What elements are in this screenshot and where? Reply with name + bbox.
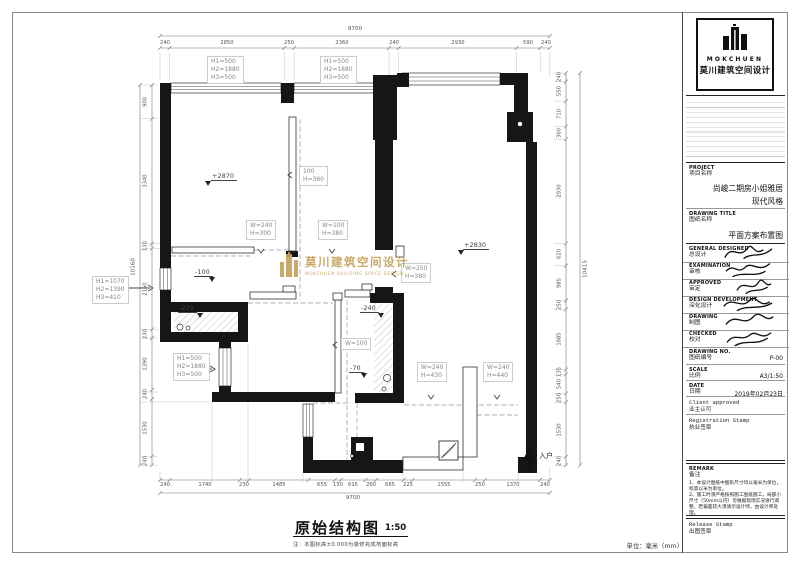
label-cn: 图纸编号	[689, 355, 730, 362]
dim-value: 1370	[506, 483, 519, 489]
dim-value: 2360	[335, 41, 348, 47]
logo-text-en: MOKCHUEN	[698, 56, 772, 63]
drawing-no-label: DRAWING NO. 图纸编号	[689, 349, 730, 362]
elevation-label: +2870	[211, 172, 237, 181]
dim-value: 150	[333, 483, 343, 489]
dim-value: 135	[557, 367, 563, 377]
plan-title: 原始结构图	[295, 517, 380, 538]
dim-total-top: 9700	[348, 27, 362, 33]
remark-label: REMARK 备注	[689, 466, 714, 479]
dim-total-right: 10415	[583, 260, 589, 278]
dim-value: 2160	[143, 282, 149, 295]
dim-value: 710	[557, 109, 563, 119]
sign-row-checked: CHECKED校对	[683, 330, 789, 348]
dim-value: 685	[385, 483, 395, 489]
opening-label: 100 H=360	[299, 166, 328, 186]
elevation-label: -100	[194, 268, 213, 277]
company-logo: MOKCHUEN 莫川建筑空间设计	[696, 18, 774, 91]
dim-value: 550	[557, 86, 563, 96]
label-en: Client approved	[689, 399, 739, 406]
client-approved-label: Client approved 业主认可	[689, 399, 739, 413]
label-cn: 日期	[689, 389, 704, 396]
plan-scale: 1:50	[385, 523, 406, 533]
dim-value: 2930	[451, 41, 464, 47]
window-label: H1=1070 H2=1390 H3=410	[92, 276, 129, 304]
dim-value: 360	[557, 128, 563, 138]
label-line: H=300	[250, 230, 272, 238]
registration-stamp-label: Registration Stamp 执业签章	[689, 417, 749, 431]
date-label: DATE 日期	[689, 383, 704, 396]
label-line: H3=500	[324, 74, 353, 82]
label-line: H1=500	[177, 355, 206, 363]
release-stamp-label: Release Stamp 出图签章	[689, 521, 733, 535]
dim-value: 240	[557, 72, 563, 82]
label-cn: 图纸名称	[689, 217, 736, 224]
dim-total-bottom: 9700	[346, 496, 360, 502]
dim-value: 240	[557, 456, 563, 466]
logo-text-cn: 莫川建筑空间设计	[698, 64, 772, 76]
dim-value: 240	[143, 456, 149, 466]
elevation-label: -220	[178, 304, 197, 313]
label-cn: 备注	[689, 472, 714, 479]
dim-value: 590	[523, 41, 533, 47]
title-block: MOKCHUEN 莫川建筑空间设计 PROJECT 项目名称 尚峻二期房小姐雅居…	[682, 12, 788, 553]
divider	[686, 515, 785, 516]
divider	[686, 396, 785, 397]
project-value: 尚峻二期房小姐雅居	[713, 183, 783, 194]
label-line: H=440	[487, 372, 509, 380]
watermark: 莫川建筑空间设计 MOKCHUEN BUILDING SPACE DESIGN	[280, 252, 409, 277]
drawing-title-label: DRAWING TITLE 图纸名称	[689, 211, 736, 224]
divider	[686, 208, 785, 209]
dim-value: 130	[143, 241, 149, 251]
drawing-sheet: 9700 240 2850 250 2360 240 2930 590 240 …	[0, 0, 800, 566]
scale-label: SCALE 比例	[689, 367, 708, 380]
entry-label: 入户	[539, 451, 553, 461]
company-logo-icon	[718, 24, 752, 50]
dim-value: 240	[160, 41, 170, 47]
label-line: H3=500	[177, 371, 206, 379]
elevation-label: -240	[360, 304, 379, 313]
divider	[686, 460, 785, 461]
dim-value: 250	[284, 41, 294, 47]
dim-value: 1530	[143, 421, 149, 434]
watermark-cn: 莫川建筑空间设计	[305, 254, 409, 270]
project-label: PROJECT 项目名称	[689, 165, 715, 178]
dim-value: 1740	[198, 483, 211, 489]
unit-note: 单位：毫米（mm）	[598, 541, 683, 550]
label-cn: 执业签章	[689, 424, 749, 431]
label-line: H=360	[303, 176, 324, 184]
divider	[686, 162, 785, 163]
divider	[686, 95, 785, 96]
divider	[686, 414, 785, 415]
divider	[686, 380, 785, 381]
scale-value: A3/1:50	[760, 373, 783, 380]
label-line: H1=500	[211, 58, 240, 66]
ruled-lines	[686, 98, 785, 159]
window-label: H1=500 H2=1880 H3=500	[320, 56, 357, 84]
label-cn: 项目名称	[689, 171, 715, 178]
label-line: H2=1390	[96, 286, 125, 294]
dim-value: 540	[557, 379, 563, 389]
dim-value: 250	[475, 483, 485, 489]
elevation-label: +2830	[463, 241, 489, 250]
dim-value: 225	[403, 483, 413, 489]
label-line: W=240	[250, 222, 272, 230]
dim-value: 240	[541, 41, 551, 47]
drawing-title-value: 平面方案布置图	[728, 230, 783, 241]
dim-value: 985	[557, 278, 563, 288]
label-line: H2=1880	[324, 66, 353, 74]
plan-note: 注：本图标高±0.000为装修完成地面标高	[293, 540, 398, 548]
dim-value: 230	[143, 329, 149, 339]
window-label: H1=500 H2=1880 H3=500	[207, 56, 244, 84]
dim-value: 1485	[272, 483, 285, 489]
divider	[686, 364, 785, 365]
dim-value: 240	[389, 41, 399, 47]
title-underline	[293, 536, 408, 537]
label-cn: 业主认可	[689, 406, 739, 413]
watermark-logo-icon	[280, 252, 301, 277]
dim-value: 240	[143, 389, 149, 399]
signature	[713, 326, 785, 348]
dim-value: 2930	[557, 184, 563, 197]
label-cn: 比例	[689, 373, 708, 380]
label-line: H3=500	[211, 74, 240, 82]
opening-label: W=240 H=440	[483, 362, 513, 382]
dim-value: 1555	[437, 483, 450, 489]
dim-value: 250	[557, 300, 563, 310]
label-line: H=380	[322, 230, 344, 238]
divider	[686, 463, 785, 464]
dim-value: 2850	[220, 41, 233, 47]
label-line: H1=1070	[96, 278, 125, 286]
dim-value: 900	[143, 97, 149, 107]
label-en: Release Stamp	[689, 521, 733, 528]
opening-label: W=100	[341, 338, 371, 350]
label-en: Registration Stamp	[689, 417, 749, 424]
label-line: W=100	[345, 340, 367, 348]
label-line: 100	[303, 168, 324, 176]
dim-value: 240	[540, 483, 550, 489]
dim-value: 620	[557, 249, 563, 259]
opening-label: W=100 H=380	[318, 220, 348, 240]
remark-note-1: 1、本设计图纸中图形尺寸均以毫米为单位，标高以米为单位。	[689, 481, 784, 493]
watermark-en: MOKCHUEN BUILDING SPACE DESIGN	[305, 271, 409, 276]
dim-total-left: 10160	[131, 258, 137, 276]
label-line: W=100	[322, 222, 344, 230]
project-style: 现代风格	[752, 196, 783, 207]
label-cn: 出图签章	[689, 528, 733, 535]
dim-value: 240	[160, 483, 170, 489]
window-label: H1=500 H2=1880 H3=500	[173, 353, 210, 381]
label-line: H2=1880	[177, 363, 206, 371]
opening-label: W=240 H=430	[417, 362, 447, 382]
drawing-no-value: P-00	[770, 355, 783, 362]
dim-value: 260	[366, 483, 376, 489]
dim-value: 250	[557, 393, 563, 403]
dim-value: 615	[348, 483, 358, 489]
dim-value: 1390	[143, 357, 149, 370]
label-line: W=240	[421, 364, 443, 372]
label-line: H3=410	[96, 294, 125, 302]
dim-value: 655	[317, 483, 327, 489]
divider	[686, 518, 785, 519]
label-line: H=430	[421, 372, 443, 380]
remark-note-2: 2、施工时须严格按照施工图纸施工，局部小尺寸（50mm以内）可根据现场实况进行调…	[689, 493, 784, 517]
label-line: W=240	[487, 364, 509, 372]
dim-value: 1685	[557, 332, 563, 345]
dim-value: 3340	[143, 174, 149, 187]
dim-value: 1530	[557, 423, 563, 436]
dim-value: 230	[239, 483, 249, 489]
label-line: H1=500	[324, 58, 353, 66]
elevation-label: -70	[349, 364, 364, 373]
opening-label: W=240 H=300	[246, 220, 276, 240]
label-line: H2=1880	[211, 66, 240, 74]
